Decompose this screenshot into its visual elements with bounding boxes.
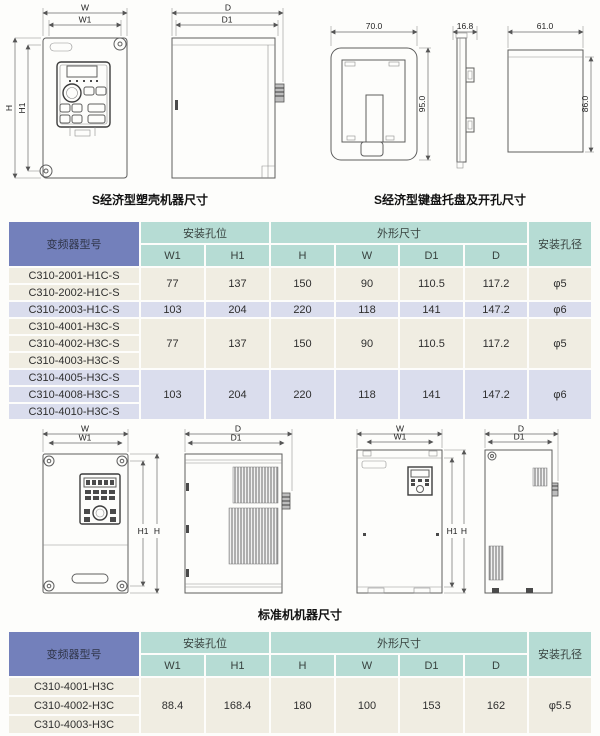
value-cell: φ5 xyxy=(529,319,591,368)
value-cell: 180 xyxy=(271,678,334,733)
header-w: W xyxy=(336,655,398,676)
header-h1: H1 xyxy=(206,655,269,676)
mounting-hole xyxy=(40,38,126,177)
header-outline-group: 外形尺寸 xyxy=(271,632,527,653)
value-cell: 204 xyxy=(206,370,269,419)
vent-grille xyxy=(533,468,547,486)
value-cell: 137 xyxy=(206,268,269,300)
model-cell: C310-2003-H1C-S xyxy=(9,302,139,317)
standard-small-side-view: D D1 xyxy=(185,425,292,593)
keypad-panel xyxy=(57,62,110,127)
model-cell: C310-2001-H1C-S xyxy=(9,268,139,283)
model-cell: C310-4002-H3C xyxy=(9,697,139,714)
vent-grille xyxy=(229,508,278,564)
dim-label-w1: W1 xyxy=(394,432,407,442)
dim-label-tray-height: 95.0 xyxy=(417,95,427,112)
header-mount-group: 安装孔位 xyxy=(141,632,269,653)
standard-drawings: W W1 H1 H xyxy=(0,425,600,613)
header-model: 变频器型号 xyxy=(9,632,139,676)
standard-large-front-view: W W1 H1 H xyxy=(357,425,467,593)
table-row: C310-4001-H3C-S 77 137 150 90 110.5 117.… xyxy=(9,319,591,334)
caption-economic: S经济型塑壳机器尺寸 xyxy=(0,191,300,208)
model-cell: C310-4008-H3C-S xyxy=(9,387,139,402)
side-knob xyxy=(282,493,290,509)
side-knob xyxy=(275,84,284,102)
value-cell: 137 xyxy=(206,319,269,368)
vent-grille xyxy=(489,546,503,580)
dim-label-h: H xyxy=(154,526,160,536)
dimension-lines xyxy=(331,26,431,160)
label-slot xyxy=(362,461,386,468)
value-cell: 150 xyxy=(271,319,334,368)
value-cell: 150 xyxy=(271,268,334,300)
economic-drawings: W W1 H H1 D D1 xyxy=(0,0,600,190)
value-cell: 168.4 xyxy=(206,678,269,733)
value-cell: 77 xyxy=(141,319,204,368)
value-cell: 162 xyxy=(465,678,527,733)
value-cell: 100 xyxy=(336,678,398,733)
economic-front-view: W W1 H H1 xyxy=(4,3,127,179)
model-cell: C310-4005-H3C-S xyxy=(9,370,139,385)
vent-grille xyxy=(233,467,278,503)
value-cell: 141 xyxy=(400,302,463,317)
value-cell: 220 xyxy=(271,302,334,317)
caption-standard: 标准机机器尺寸 xyxy=(0,606,600,623)
dimension-lines xyxy=(508,26,594,152)
keypad-tray-front-view: 70.0 95.0 xyxy=(331,21,431,160)
value-cell: 147.2 xyxy=(465,370,527,419)
label-slot xyxy=(50,43,72,51)
header-d: D xyxy=(465,655,527,676)
manual-page: W W1 H H1 D D1 xyxy=(0,0,600,736)
model-cell: C310-4001-H3C xyxy=(9,678,139,695)
header-h: H xyxy=(271,245,334,266)
keypad-panel xyxy=(408,467,432,495)
value-cell: 204 xyxy=(206,302,269,317)
model-cell: C310-2002-H1C-S xyxy=(9,285,139,300)
value-cell: 77 xyxy=(141,268,204,300)
model-cell: C310-4010-H3C-S xyxy=(9,404,139,419)
dim-label-cut-width: 61.0 xyxy=(537,21,554,31)
value-cell: 147.2 xyxy=(465,302,527,317)
table-row: C310-2001-H1C-S 77 137 150 90 110.5 117.… xyxy=(9,268,591,283)
value-cell: 103 xyxy=(141,302,204,317)
dim-label-h1: H1 xyxy=(17,102,27,113)
knob xyxy=(417,486,424,493)
header-mount-group: 安装孔位 xyxy=(141,222,269,243)
dim-label-w1: W1 xyxy=(79,433,92,443)
display xyxy=(67,66,97,77)
value-cell: 110.5 xyxy=(400,319,463,368)
value-cell: 90 xyxy=(336,319,398,368)
dim-label-w1: W1 xyxy=(79,15,92,25)
dim-label-w: W xyxy=(81,3,89,13)
header-hole-dia: 安装孔径 xyxy=(529,222,591,266)
table-row: C310-4005-H3C-S 103 204 220 118 141 147.… xyxy=(9,370,591,385)
header-w: W xyxy=(336,245,398,266)
model-cell: C310-4001-H3C-S xyxy=(9,319,139,334)
value-cell: φ5.5 xyxy=(529,678,591,733)
model-cell: C310-4002-H3C-S xyxy=(9,336,139,351)
header-w1: W1 xyxy=(141,245,204,266)
model-cell: C310-4003-H3C-S xyxy=(9,353,139,368)
dim-label-h1: H1 xyxy=(447,526,458,536)
value-cell: 118 xyxy=(336,370,398,419)
value-cell: φ5 xyxy=(529,268,591,300)
dim-label-tray-width: 70.0 xyxy=(366,21,383,31)
value-cell: 117.2 xyxy=(465,319,527,368)
header-d1: D1 xyxy=(400,655,463,676)
dim-label-d1: D1 xyxy=(222,15,233,25)
standard-spec-table: 变频器型号 安装孔位 外形尺寸 安装孔径 W1 H1 H W D1 D C310… xyxy=(7,630,593,735)
header-hole-dia: 安装孔径 xyxy=(529,632,591,676)
value-cell: 220 xyxy=(271,370,334,419)
value-cell: 88.4 xyxy=(141,678,204,733)
header-model: 变频器型号 xyxy=(9,222,139,266)
dim-label-d1: D1 xyxy=(231,433,242,443)
value-cell: 117.2 xyxy=(465,268,527,300)
latch-hooks xyxy=(466,68,474,132)
knob xyxy=(63,84,81,102)
dim-label-d1: D1 xyxy=(514,432,525,442)
keypad-tray-side-view: 16.8 xyxy=(453,21,477,168)
display-digits xyxy=(86,480,114,485)
bottom-slot xyxy=(72,574,108,583)
value-cell: 90 xyxy=(336,268,398,300)
dimension-lines xyxy=(357,429,466,593)
table-row: C310-4001-H3C 88.4 168.4 180 100 153 162… xyxy=(9,678,591,695)
cutout-view: 61.0 86.0 xyxy=(508,21,594,152)
value-cell: 103 xyxy=(141,370,204,419)
value-cell: 153 xyxy=(400,678,463,733)
model-cell: C310-4003-H3C xyxy=(9,716,139,733)
header-d1: D1 xyxy=(400,245,463,266)
caption-keypad-tray: S经济型键盘托盘及开孔尺寸 xyxy=(300,191,600,208)
keypad-panel xyxy=(80,474,120,524)
economic-side-view: D D1 xyxy=(172,3,284,179)
display xyxy=(411,470,429,477)
knob xyxy=(93,506,107,520)
header-w1: W1 xyxy=(141,655,204,676)
standard-large-side-view: D D1 xyxy=(485,425,558,593)
dim-label-d: D xyxy=(225,3,231,13)
value-cell: 141 xyxy=(400,370,463,419)
value-cell: 118 xyxy=(336,302,398,317)
header-h: H xyxy=(271,655,334,676)
dim-label-tray-depth: 16.8 xyxy=(457,21,474,31)
dim-label-cut-height: 86.0 xyxy=(580,95,590,112)
dim-label-h: H xyxy=(461,526,467,536)
keypad-buttons xyxy=(411,479,429,486)
dim-label-h: H xyxy=(4,105,14,111)
economic-spec-table: 变频器型号 安装孔位 外形尺寸 安装孔径 W1 H1 H W D1 D C310… xyxy=(7,220,593,421)
side-knob xyxy=(552,483,558,496)
table-row: C310-2003-H1C-S 103 204 220 118 141 147.… xyxy=(9,302,591,317)
value-cell: φ6 xyxy=(529,302,591,317)
header-d: D xyxy=(465,245,527,266)
value-cell: φ6 xyxy=(529,370,591,419)
header-outline-group: 外形尺寸 xyxy=(271,222,527,243)
standard-small-front-view: W W1 H1 H xyxy=(43,425,160,593)
header-h1: H1 xyxy=(206,245,269,266)
keypad-buttons xyxy=(60,87,106,123)
indicator-leds xyxy=(69,80,98,82)
value-cell: 110.5 xyxy=(400,268,463,300)
dim-label-h1: H1 xyxy=(138,526,149,536)
